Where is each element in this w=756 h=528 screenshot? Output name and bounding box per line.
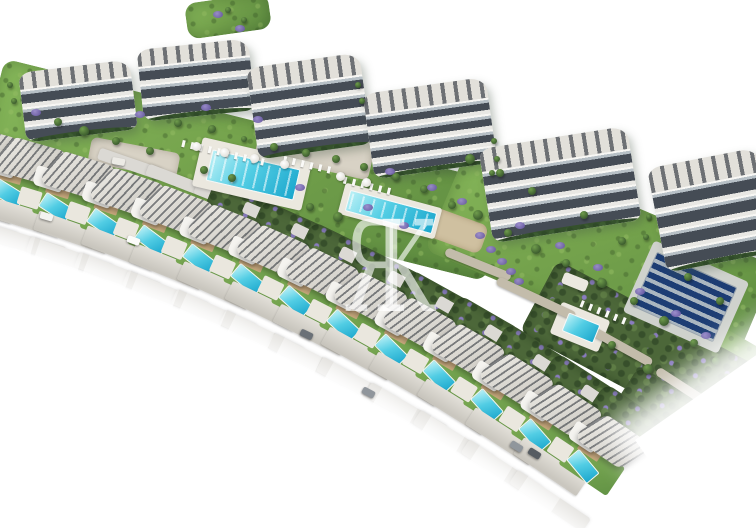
sun-lounger bbox=[621, 316, 626, 324]
tree bbox=[690, 339, 698, 347]
pool-umbrella bbox=[192, 142, 201, 151]
lavender-patch bbox=[427, 184, 437, 191]
scene-aerial-render: Я K bbox=[0, 0, 756, 528]
apartment-block bbox=[363, 77, 498, 179]
tree bbox=[608, 341, 616, 349]
sun-lounger bbox=[352, 178, 357, 186]
tree bbox=[489, 170, 495, 176]
sun-lounger bbox=[327, 166, 331, 173]
apartment-block bbox=[246, 53, 372, 160]
sun-lounger bbox=[596, 306, 601, 314]
tree bbox=[241, 17, 247, 23]
lavender-patch bbox=[457, 198, 467, 205]
tree bbox=[112, 137, 120, 145]
tree bbox=[528, 187, 536, 195]
tree bbox=[174, 119, 182, 127]
tree bbox=[241, 136, 247, 142]
lavender-patch bbox=[385, 168, 395, 175]
apartment-block bbox=[647, 147, 756, 272]
lawn-area bbox=[184, 0, 272, 40]
sun-lounger bbox=[378, 185, 383, 193]
lavender-patch bbox=[399, 222, 409, 229]
sun-lounger bbox=[605, 310, 610, 318]
lavender-patch bbox=[135, 111, 145, 118]
lavender-patch bbox=[201, 104, 211, 111]
tree bbox=[79, 126, 89, 136]
tree bbox=[494, 156, 500, 162]
tree bbox=[228, 174, 236, 182]
sun-lounger bbox=[580, 300, 585, 308]
tree bbox=[7, 82, 13, 88]
pool-umbrella bbox=[220, 148, 229, 157]
lavender-patch bbox=[515, 222, 525, 229]
tree bbox=[630, 297, 638, 305]
sun-lounger bbox=[243, 154, 247, 161]
sun-lounger bbox=[309, 162, 313, 169]
sun-lounger bbox=[318, 164, 322, 171]
tree bbox=[359, 98, 365, 104]
lavender-patch bbox=[486, 246, 496, 253]
tree bbox=[200, 166, 208, 174]
tree bbox=[306, 203, 314, 211]
pool-umbrella bbox=[250, 154, 259, 163]
tree bbox=[332, 155, 340, 163]
lavender-patch bbox=[671, 310, 681, 317]
tree bbox=[355, 82, 361, 88]
lavender-patch bbox=[593, 264, 603, 271]
tree bbox=[491, 138, 497, 144]
tree bbox=[643, 234, 649, 240]
pool-umbrella bbox=[336, 172, 345, 181]
sun-lounger bbox=[181, 139, 185, 146]
tree bbox=[270, 143, 278, 151]
lavender-patch bbox=[635, 288, 645, 295]
pool-umbrella bbox=[362, 178, 371, 187]
tree bbox=[712, 357, 720, 365]
tree bbox=[473, 210, 483, 220]
tree bbox=[448, 201, 456, 209]
tree bbox=[465, 154, 475, 164]
tree bbox=[496, 169, 504, 177]
tree bbox=[208, 125, 216, 133]
apartment-block bbox=[137, 38, 256, 121]
lavender-patch bbox=[235, 25, 245, 32]
pool-umbrella bbox=[280, 160, 289, 169]
lavender-patch bbox=[31, 109, 41, 116]
sun-lounger bbox=[588, 303, 593, 311]
apartment-block bbox=[18, 59, 138, 142]
lavender-patch bbox=[701, 332, 711, 339]
tree bbox=[360, 163, 368, 171]
tree bbox=[333, 212, 343, 222]
sun-lounger bbox=[387, 187, 392, 195]
lavender-patch bbox=[497, 258, 507, 265]
tree bbox=[646, 214, 652, 220]
tree bbox=[302, 149, 310, 157]
sun-lounger bbox=[260, 158, 264, 165]
sun-lounger bbox=[300, 160, 304, 167]
tree bbox=[716, 297, 724, 305]
lavender-patch bbox=[506, 268, 516, 275]
tree bbox=[580, 211, 588, 219]
tree bbox=[11, 98, 17, 104]
tree bbox=[504, 229, 512, 237]
lavender-patch bbox=[475, 232, 485, 239]
sun-lounger bbox=[613, 313, 618, 321]
tree bbox=[597, 278, 607, 288]
tree bbox=[659, 316, 669, 326]
lavender-patch bbox=[253, 116, 263, 123]
tree bbox=[54, 118, 62, 126]
tree bbox=[643, 364, 653, 374]
tree bbox=[146, 147, 154, 155]
lavender-patch bbox=[295, 184, 305, 191]
tree bbox=[684, 273, 692, 281]
tree bbox=[531, 244, 541, 254]
tree bbox=[225, 7, 231, 13]
sun-lounger bbox=[292, 158, 296, 165]
lavender-patch bbox=[213, 11, 223, 18]
lavender-patch bbox=[363, 204, 373, 211]
tree bbox=[562, 259, 570, 267]
sun-lounger bbox=[208, 146, 212, 153]
tree bbox=[618, 237, 626, 245]
lavender-patch bbox=[514, 278, 524, 285]
lavender-patch bbox=[555, 242, 565, 249]
sun-lounger bbox=[234, 152, 238, 159]
